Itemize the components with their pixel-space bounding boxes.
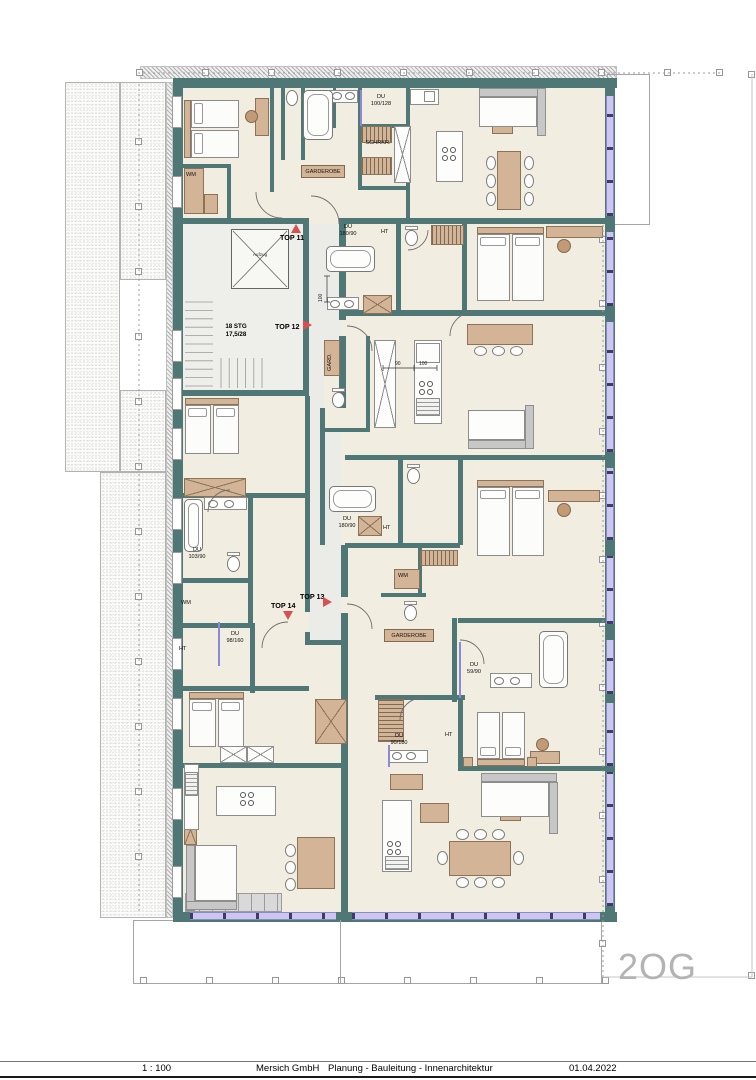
room-label-gard: GARD. bbox=[327, 353, 334, 371]
washbasin bbox=[406, 752, 416, 760]
wall-segment bbox=[305, 640, 346, 645]
wall-segment bbox=[183, 578, 250, 583]
bathtub bbox=[329, 486, 376, 512]
washbasin bbox=[286, 90, 298, 106]
cooktop-burner bbox=[442, 147, 448, 153]
room-label-du18090b: DU 180/90 bbox=[329, 516, 365, 530]
terrace-gravel bbox=[120, 390, 166, 472]
cabinet bbox=[527, 757, 537, 767]
unit-label-top11: TOP 11 bbox=[280, 233, 304, 242]
bed-headboard bbox=[477, 759, 525, 766]
dining-chair bbox=[510, 346, 523, 356]
cooktop-burner bbox=[240, 800, 246, 806]
railing-post bbox=[470, 977, 477, 984]
room-label-ht1: HT bbox=[381, 229, 388, 236]
terrace-gravel bbox=[65, 82, 120, 472]
window-glazing bbox=[606, 468, 614, 540]
wall-segment bbox=[458, 455, 463, 545]
cabinet bbox=[204, 194, 218, 214]
bathtub bbox=[539, 631, 568, 688]
window-glazing bbox=[352, 912, 600, 920]
pillow bbox=[192, 702, 212, 711]
pillow bbox=[480, 237, 506, 246]
scale-text: 1 : 100 bbox=[142, 1063, 171, 1074]
cooktop-burner bbox=[387, 841, 393, 847]
railing-post bbox=[602, 977, 609, 984]
wall-segment bbox=[183, 390, 309, 396]
window-glazing bbox=[606, 232, 614, 306]
wall-segment bbox=[173, 78, 617, 88]
counter bbox=[216, 786, 276, 816]
pillow bbox=[480, 747, 496, 756]
cooktop-burner bbox=[395, 841, 401, 847]
balcony-outline bbox=[133, 920, 602, 984]
dining-chair bbox=[486, 192, 496, 206]
dining-chair bbox=[474, 346, 487, 356]
dining-chair bbox=[524, 156, 534, 170]
wall-segment bbox=[396, 224, 401, 314]
appliance bbox=[185, 772, 198, 796]
railing-post bbox=[135, 398, 142, 405]
room-label-garderobe1: GARDEROBE bbox=[301, 165, 345, 178]
wall-segment bbox=[281, 88, 285, 160]
glass-partition bbox=[388, 745, 390, 767]
bed-headboard bbox=[477, 227, 544, 234]
railing-post bbox=[135, 593, 142, 600]
unit-label-top14: TOP 14 bbox=[271, 601, 296, 610]
railing-post bbox=[140, 977, 147, 984]
sofa-element bbox=[186, 901, 237, 910]
bed-headboard bbox=[477, 480, 544, 487]
titleblock-border bbox=[0, 1076, 756, 1078]
counter bbox=[416, 343, 440, 363]
pillow bbox=[505, 747, 521, 756]
window bbox=[172, 330, 182, 362]
toilet bbox=[407, 468, 420, 484]
wall-segment bbox=[303, 224, 309, 396]
washbasin bbox=[224, 500, 234, 508]
railing-post bbox=[536, 977, 543, 984]
cooktop-burner bbox=[248, 800, 254, 806]
wardrobe-hangers bbox=[431, 225, 464, 245]
cabinet bbox=[467, 324, 533, 345]
railing-post bbox=[268, 69, 275, 76]
room-label-wm3: WM bbox=[398, 573, 408, 580]
railing-post bbox=[135, 463, 142, 470]
room-label-du5990: DU 59/90 bbox=[455, 662, 493, 676]
room-label-du98160: DU 98/160 bbox=[216, 631, 254, 645]
pillow bbox=[194, 103, 203, 124]
balcony-divider bbox=[340, 920, 341, 984]
toilet bbox=[405, 230, 418, 246]
window bbox=[172, 96, 182, 128]
wall-segment bbox=[345, 455, 607, 460]
dining-chair bbox=[285, 844, 296, 857]
dining-chair bbox=[492, 829, 505, 840]
cabinet bbox=[390, 774, 423, 790]
cabinet bbox=[463, 757, 473, 767]
dining-chair bbox=[456, 877, 469, 888]
washbasin bbox=[332, 92, 342, 100]
unit-label-top13: TOP 13 bbox=[300, 592, 325, 601]
railing-post bbox=[135, 723, 142, 730]
railing-post bbox=[716, 69, 723, 76]
wall-segment bbox=[305, 396, 310, 612]
stairs-label: 18 STG 17,5/28 bbox=[205, 323, 267, 339]
room-label-du18090a: DU 180/90 bbox=[330, 224, 366, 238]
railing-post bbox=[135, 138, 142, 145]
desk-chair bbox=[557, 503, 571, 517]
company-text: Mersich GmbH bbox=[256, 1063, 319, 1074]
window bbox=[172, 638, 182, 670]
washbasin bbox=[510, 677, 520, 685]
room-label-ht3: HT bbox=[179, 646, 186, 653]
railing-post bbox=[664, 69, 671, 76]
date-text: 01.04.2022 bbox=[569, 1063, 617, 1074]
railing-post bbox=[272, 977, 279, 984]
sofa-element bbox=[481, 773, 557, 782]
dining-chair bbox=[474, 829, 487, 840]
pillow bbox=[221, 702, 241, 711]
dining-chair bbox=[524, 174, 534, 188]
railing-post bbox=[598, 69, 605, 76]
wall-segment bbox=[398, 455, 403, 545]
cabinet bbox=[546, 226, 603, 238]
pillow bbox=[216, 408, 235, 417]
room-label-dim90: 90 bbox=[395, 361, 401, 367]
pillow bbox=[515, 237, 541, 246]
railing-post bbox=[206, 977, 213, 984]
window bbox=[172, 378, 182, 410]
room-label-wm2: WM bbox=[181, 600, 191, 607]
railing-post bbox=[135, 528, 142, 535]
toilet bbox=[227, 556, 240, 572]
railing-post bbox=[135, 203, 142, 210]
wardrobe-hangers bbox=[361, 157, 392, 175]
washbasin bbox=[392, 752, 402, 760]
railing-post bbox=[135, 333, 142, 340]
washbasin bbox=[344, 300, 354, 308]
railing-post bbox=[532, 69, 539, 76]
sofa-element bbox=[537, 88, 546, 136]
wall-segment bbox=[270, 88, 274, 192]
terrace-gravel bbox=[100, 472, 166, 918]
railing-post bbox=[466, 69, 473, 76]
wall-segment bbox=[452, 618, 457, 702]
wardrobe-x bbox=[315, 699, 347, 744]
window bbox=[172, 176, 182, 208]
wall-segment bbox=[227, 164, 231, 222]
services-text: Planung - Bauleitung - Innenarchitektur bbox=[328, 1063, 493, 1074]
room-label-ht4: HT bbox=[445, 732, 452, 739]
cooktop-burner bbox=[395, 849, 401, 855]
appliance bbox=[385, 856, 409, 870]
washbasin bbox=[330, 300, 340, 308]
window-glazing bbox=[606, 772, 614, 906]
dining-chair bbox=[524, 192, 534, 206]
wardrobe-x bbox=[247, 746, 274, 763]
bed-headboard bbox=[184, 100, 191, 158]
toilet bbox=[332, 392, 345, 408]
wall-segment bbox=[458, 618, 607, 623]
wardrobe-x bbox=[394, 126, 411, 183]
room-label-dim100v: 100 bbox=[318, 294, 324, 302]
railing-post bbox=[599, 940, 606, 947]
railing-post bbox=[404, 977, 411, 984]
cooktop-burner bbox=[427, 381, 433, 387]
corridor-floor bbox=[309, 224, 341, 640]
wall-segment bbox=[341, 545, 348, 597]
desk-chair bbox=[245, 110, 258, 123]
wardrobe-x bbox=[220, 746, 247, 763]
bathtub bbox=[184, 499, 203, 552]
sofa bbox=[195, 845, 237, 901]
room-label-du100128: DU 100/128 bbox=[362, 94, 400, 108]
railing-post bbox=[135, 268, 142, 275]
bed-headboard bbox=[189, 692, 244, 699]
wall-segment bbox=[183, 763, 346, 768]
dining-chair bbox=[437, 851, 448, 865]
dining-chair bbox=[456, 829, 469, 840]
room-label-du10390: DU 103/90 bbox=[178, 547, 216, 561]
room-label-du90180: DU 90/180 bbox=[380, 733, 418, 747]
washbasin bbox=[494, 677, 504, 685]
wardrobe-x bbox=[184, 478, 246, 497]
wall-segment bbox=[339, 218, 607, 224]
unit-door-marker-top14 bbox=[283, 611, 293, 620]
bathtub bbox=[326, 246, 375, 272]
cooktop-burner bbox=[450, 147, 456, 153]
cooktop-burner bbox=[240, 792, 246, 798]
pillow bbox=[480, 490, 506, 499]
unit-door-marker-top11 bbox=[291, 224, 301, 233]
sofa bbox=[479, 97, 537, 127]
appliance bbox=[416, 398, 440, 416]
railing-post bbox=[748, 972, 755, 979]
wardrobe-hangers bbox=[420, 550, 458, 566]
window-glazing bbox=[190, 912, 336, 920]
room-label-garderobe2: GARDEROBE bbox=[384, 629, 434, 642]
unit-label-top12: TOP 12 bbox=[275, 322, 300, 331]
bathtub bbox=[303, 90, 333, 140]
unit-door-marker-top13 bbox=[323, 597, 332, 607]
wall-segment bbox=[381, 593, 426, 597]
dining-chair bbox=[285, 861, 296, 874]
railing-post bbox=[135, 853, 142, 860]
pillow bbox=[188, 408, 207, 417]
cooktop-burner bbox=[248, 792, 254, 798]
window-glazing bbox=[606, 703, 614, 766]
sofa-element bbox=[525, 405, 534, 449]
window bbox=[172, 788, 182, 820]
floor-plan: 2OG 18 STG 17,5/28 Aufzug 1 : 100 Mersic… bbox=[0, 0, 756, 1080]
window bbox=[172, 498, 182, 530]
dining-chair bbox=[492, 346, 505, 356]
cooktop-burner bbox=[387, 849, 393, 855]
window-glazing bbox=[606, 322, 614, 452]
dining-chair bbox=[474, 877, 487, 888]
railing-post bbox=[135, 658, 142, 665]
wall-segment bbox=[366, 336, 370, 432]
room-label-schrkr: SCHRKR. bbox=[360, 140, 396, 147]
railing-post bbox=[748, 71, 755, 78]
wall-segment bbox=[345, 543, 460, 548]
wall-segment bbox=[320, 428, 370, 432]
cooktop-burner bbox=[450, 155, 456, 161]
window bbox=[172, 428, 182, 460]
sofa-element bbox=[479, 88, 546, 97]
dining-chair bbox=[513, 851, 524, 865]
wardrobe-x bbox=[374, 340, 396, 428]
unit-door-marker-top12 bbox=[303, 320, 312, 330]
cabinet bbox=[297, 837, 335, 889]
wall-segment bbox=[248, 498, 253, 623]
window-glazing bbox=[606, 640, 614, 694]
dining-chair bbox=[486, 156, 496, 170]
window bbox=[172, 866, 182, 898]
washbasin bbox=[345, 92, 355, 100]
dining-chair bbox=[492, 877, 505, 888]
dining-chair bbox=[285, 878, 296, 891]
dining-chair bbox=[486, 174, 496, 188]
cabinet bbox=[420, 803, 449, 823]
window-glazing bbox=[606, 556, 614, 624]
railing-post bbox=[202, 69, 209, 76]
room-label-dim100: 100 bbox=[419, 361, 427, 367]
floor-title: 2OG bbox=[618, 946, 697, 988]
room-label-wm1: WM bbox=[186, 172, 196, 179]
sofa bbox=[468, 410, 525, 440]
wall-segment bbox=[183, 686, 309, 691]
pillow bbox=[515, 490, 541, 499]
toilet bbox=[404, 605, 417, 621]
cooktop-burner bbox=[427, 389, 433, 395]
railing-post bbox=[400, 69, 407, 76]
desk-chair bbox=[536, 738, 549, 751]
titleblock-divider bbox=[0, 1061, 756, 1062]
elevator-label: Aufzug bbox=[233, 252, 287, 257]
terrace-gravel bbox=[120, 82, 166, 280]
sofa-element bbox=[549, 782, 558, 834]
wall-segment bbox=[358, 186, 408, 190]
cabinet bbox=[548, 490, 600, 502]
cabinet bbox=[449, 841, 511, 876]
railing-post bbox=[334, 69, 341, 76]
sofa bbox=[481, 782, 549, 817]
cooktop-burner bbox=[419, 389, 425, 395]
cooktop-burner bbox=[419, 381, 425, 387]
wardrobe-x bbox=[363, 295, 392, 314]
cabinet bbox=[497, 151, 521, 210]
desk-chair bbox=[557, 239, 571, 253]
window-glazing bbox=[606, 96, 614, 216]
cooktop-burner bbox=[442, 155, 448, 161]
railing-post bbox=[135, 788, 142, 795]
washbasin bbox=[208, 500, 218, 508]
pillow bbox=[194, 133, 203, 154]
railing-post bbox=[136, 69, 143, 76]
window bbox=[172, 698, 182, 730]
counter bbox=[424, 91, 435, 102]
room-label-ht2: HT bbox=[383, 525, 390, 532]
bed-headboard bbox=[185, 398, 239, 405]
